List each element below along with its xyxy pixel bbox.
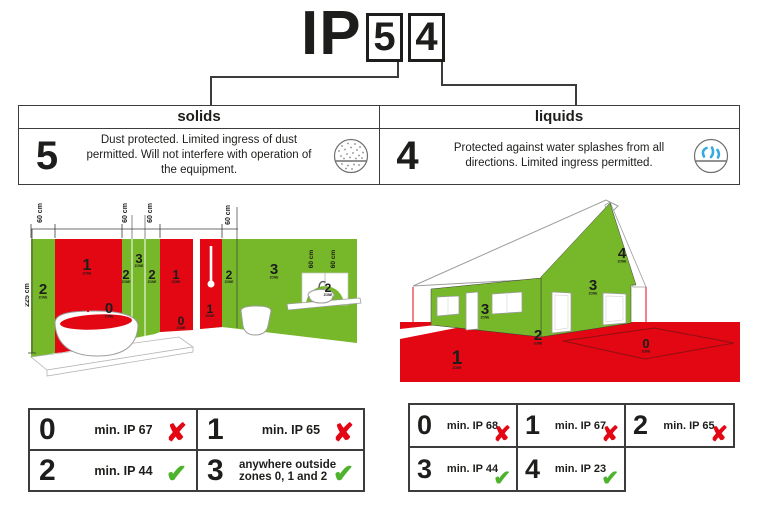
connector-line	[441, 62, 443, 86]
requirement-cell-zone2: 2 min. IP 65 ✘	[624, 403, 735, 448]
zone-word: ZONE	[135, 264, 144, 268]
solids-rating-panel: solids 5 Dust protected. Limited ingress…	[18, 105, 380, 185]
liquids-header: liquids	[380, 106, 739, 129]
zone-word: ZONE	[225, 280, 234, 284]
zone-word: ZONE	[642, 350, 651, 354]
connector-line	[210, 76, 399, 78]
zone-word: ZONE	[172, 280, 181, 284]
house-requirements-table: 0 min. IP 68 ✘ 1 min. IP 67 ✘ 2 min. IP …	[408, 403, 735, 492]
allowed-mark: ✔	[166, 462, 187, 487]
ip54-infographic: IP 5 4 solids 5 Dust protected. Limited …	[0, 0, 758, 505]
zone-word: ZONE	[324, 293, 333, 297]
connector-line	[210, 76, 212, 105]
zone-number: 4	[525, 456, 551, 483]
allowed-mark: ✔	[601, 468, 619, 489]
ip-title-prefix: IP	[301, 3, 362, 65]
zone-word: ZONE	[177, 326, 186, 330]
zone-word: ZONE	[270, 276, 279, 280]
bathroom-zones-illustration: 60 cm 60 cm 60 cm 60 cm 225 cm 60 cm 60 …	[25, 195, 370, 395]
requirement-cell-zone0: 0 min. IP 67 ✘	[28, 408, 198, 451]
dimension-label: 60 cm	[147, 203, 154, 223]
zone-number: 1	[207, 415, 239, 445]
dimension-label: 60 cm	[122, 203, 129, 223]
requirement-cell-zone4: 4 min. IP 23 ✔	[516, 446, 626, 492]
ip-solids-digit: 5	[373, 15, 395, 60]
dimension-label: 60 cm	[225, 205, 232, 225]
toilet	[241, 306, 271, 335]
zone-word: ZONE	[148, 280, 157, 284]
room-height-label: 225 cm	[25, 283, 31, 307]
zone-word: ZONE	[534, 342, 543, 346]
zone-number: 0	[417, 412, 443, 439]
requirement-cell-zone1: 1 min. IP 67 ✘	[516, 403, 626, 448]
zone-word: ZONE	[39, 296, 48, 300]
requirement-cell-zone1: 1 min. IP 65 ✘	[196, 408, 365, 451]
allowed-mark: ✔	[493, 468, 511, 489]
zone-number: 2	[633, 412, 659, 439]
house-zones-illustration: 4 ZONE 3 ZONE 3 ZONE 2 ZONE 1 ZONE 0 ZON…	[400, 195, 740, 390]
zone-number: 1	[525, 412, 551, 439]
not-allowed-mark: ✘	[601, 424, 619, 445]
requirement-cell-zone3: 3 anywhere outside zones 0, 1 and 2 ✔	[196, 449, 365, 492]
zone-number: 0	[39, 415, 71, 445]
dimension-label: 60 cm	[308, 250, 315, 269]
dimension-label: 60 cm	[37, 203, 44, 223]
not-allowed-mark: ✘	[710, 424, 728, 445]
zone-number: 3	[207, 456, 239, 486]
zone-word: ZONE	[83, 272, 92, 276]
zone-number: 2	[39, 456, 71, 486]
shower-glass-divider	[193, 239, 200, 330]
solids-rating-description: Dust protected. Limited ingress of dust …	[75, 133, 323, 178]
not-allowed-mark: ✘	[493, 424, 511, 445]
dimension-label: 60 cm	[330, 250, 337, 269]
dust-protection-icon	[332, 137, 370, 175]
zone-word: ZONE	[122, 280, 131, 284]
shower-zone1-left-panel	[160, 239, 193, 332]
ip-liquids-digit: 4	[415, 15, 437, 60]
allowed-mark: ✔	[333, 462, 354, 487]
requirement-cell-zone2: 2 min. IP 44 ✔	[28, 449, 198, 492]
shower-head	[208, 281, 215, 288]
liquids-rating-description: Protected against water splashes from al…	[436, 141, 683, 171]
ip-liquids-digit-box: 4	[408, 13, 445, 62]
zone-number: 3	[417, 456, 443, 483]
connector-line	[575, 84, 577, 105]
requirement-cell-zone0: 0 min. IP 68 ✘	[408, 403, 518, 448]
zone-word: ZONE	[481, 316, 490, 320]
solids-header: solids	[19, 106, 379, 129]
zone-word: ZONE	[618, 260, 627, 264]
not-allowed-mark: ✘	[166, 421, 187, 446]
liquids-rating-digit: 4	[380, 136, 436, 176]
zone-word: ZONE	[206, 314, 215, 318]
zone-word: ZONE	[453, 366, 462, 370]
front-door	[466, 292, 478, 330]
water-splash-icon	[692, 137, 730, 175]
zone-word: ZONE	[105, 315, 114, 319]
bathroom-requirements-table: 0 min. IP 67 ✘ 1 min. IP 65 ✘ 2 min. IP …	[28, 408, 365, 492]
zone-word: ZONE	[589, 292, 598, 296]
connector-line	[441, 84, 577, 86]
ip-solids-digit-box: 5	[366, 13, 403, 62]
solids-rating-digit: 5	[19, 136, 75, 176]
requirement-cell-zone3: 3 min. IP 44 ✔	[408, 446, 518, 492]
liquids-rating-panel: liquids 4 Protected against water splash…	[379, 105, 740, 185]
not-allowed-mark: ✘	[333, 421, 354, 446]
